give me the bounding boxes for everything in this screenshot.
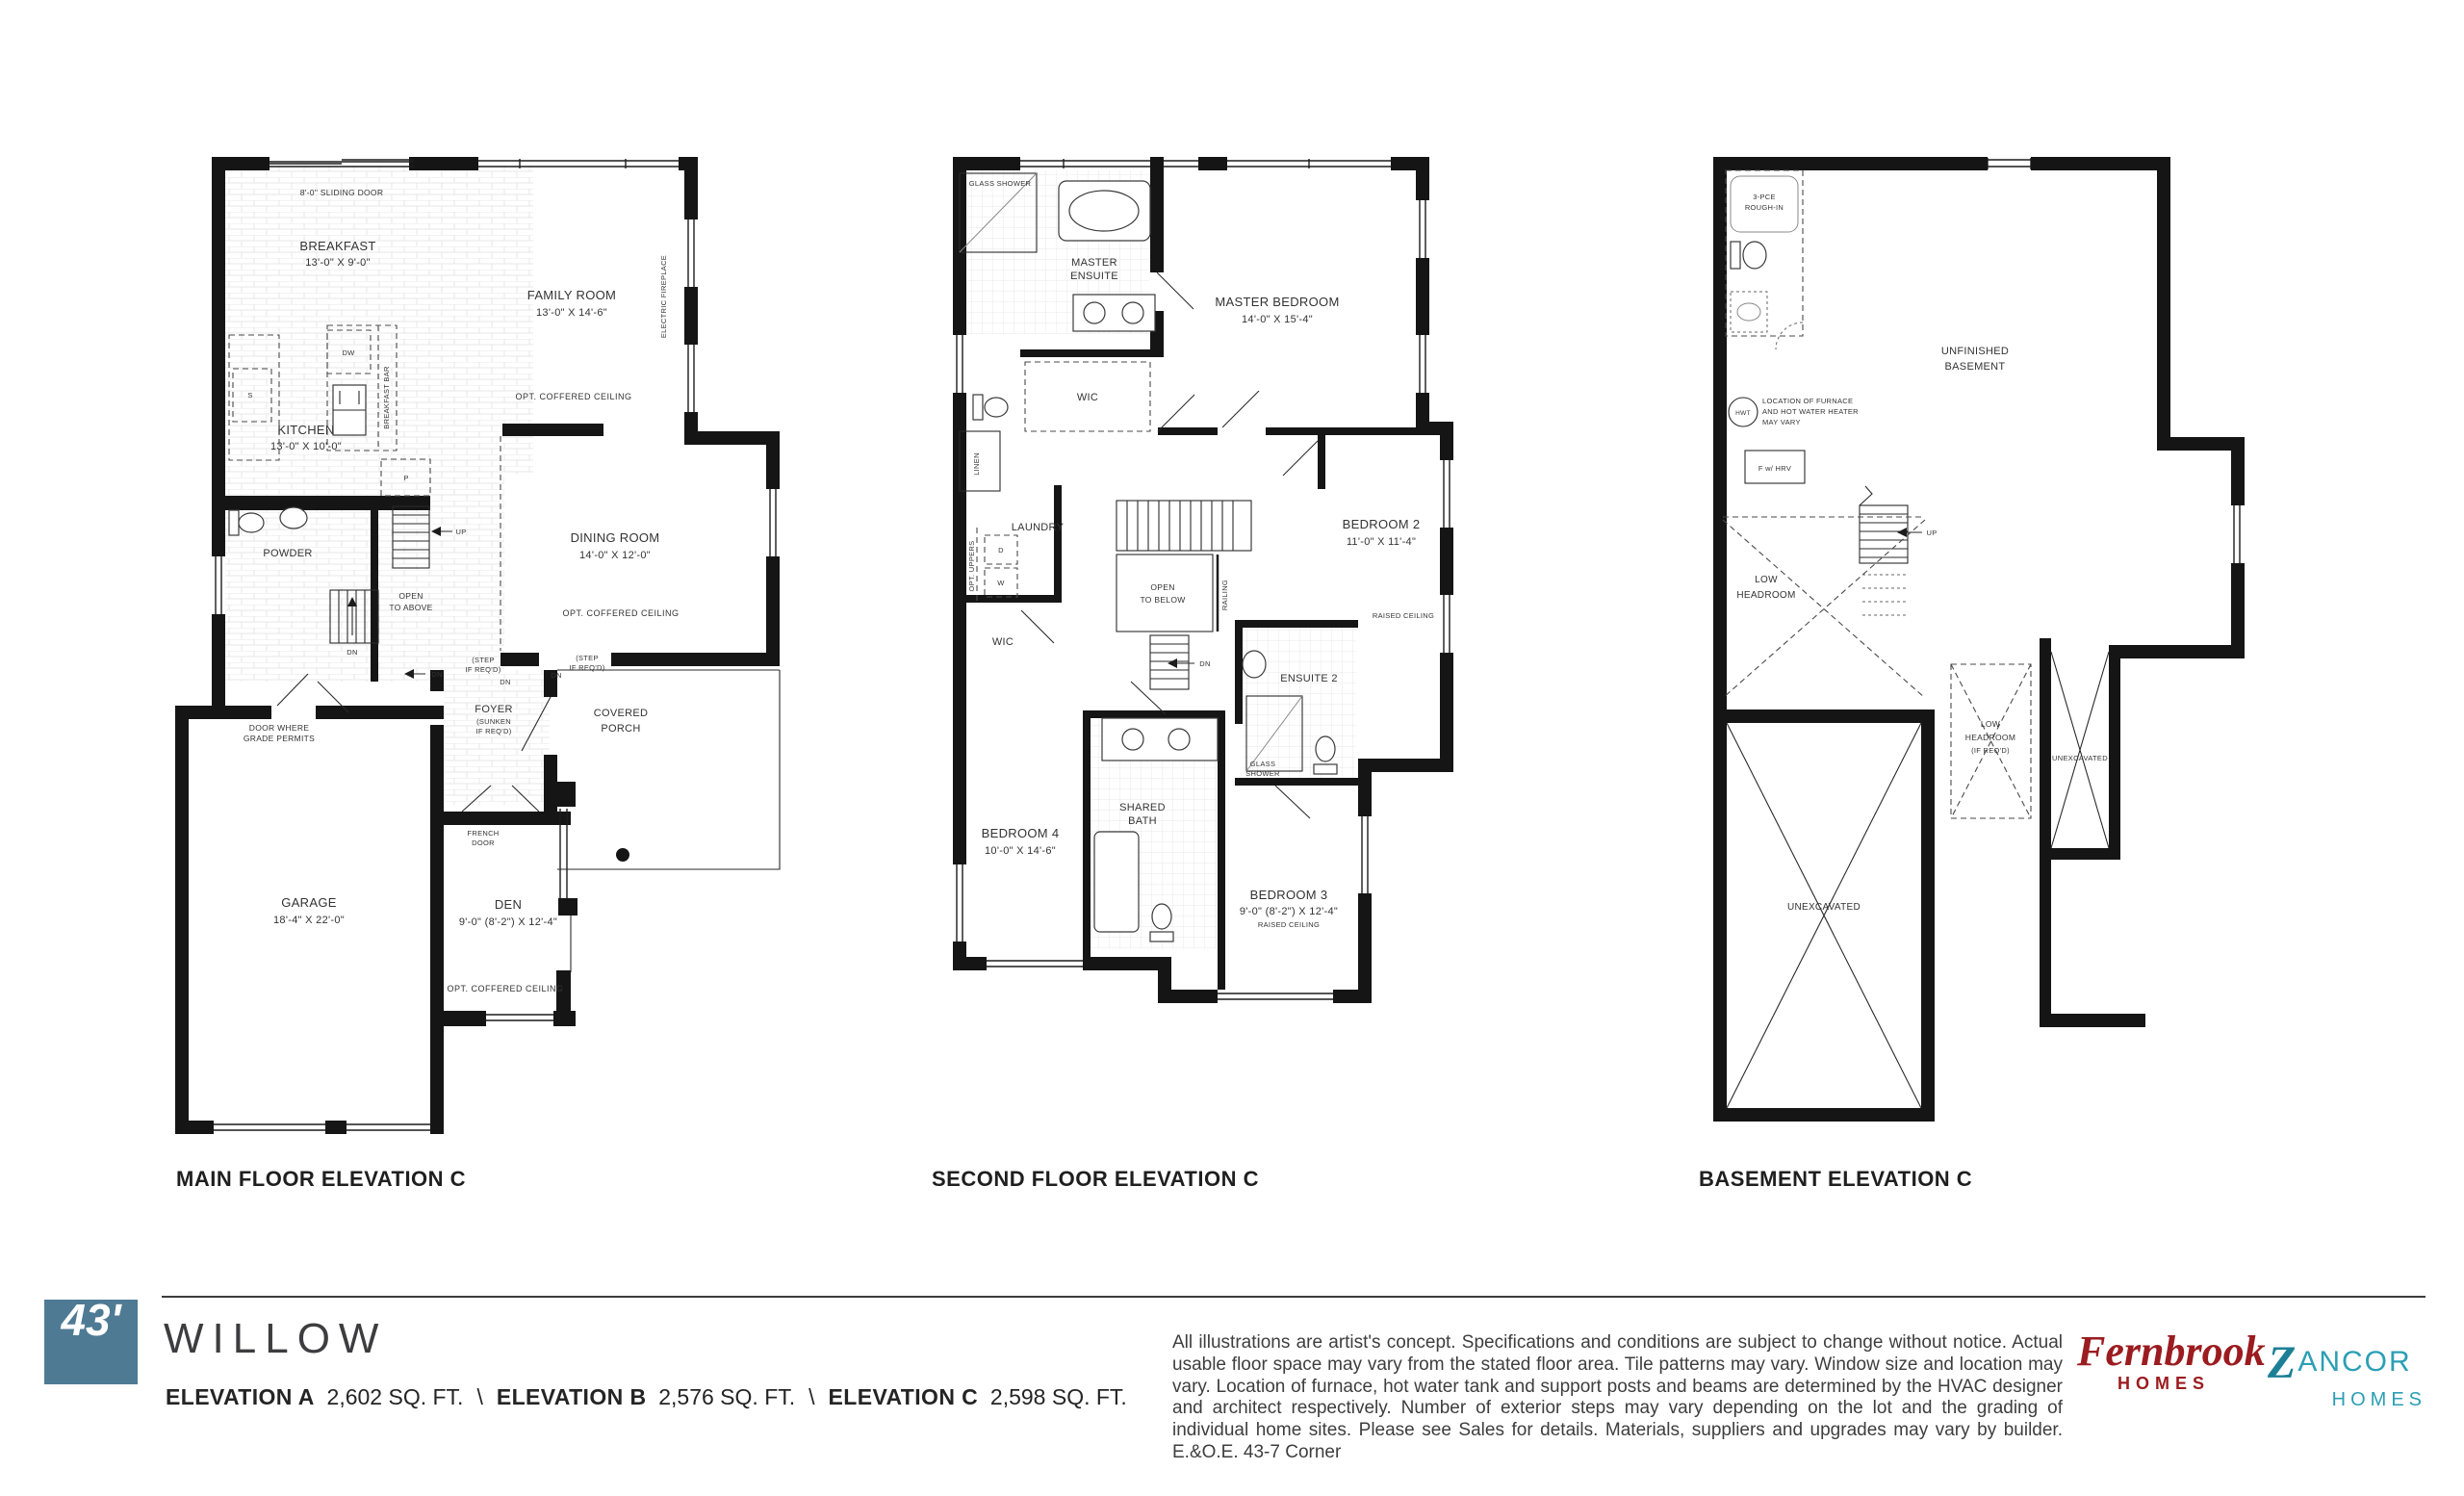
open-to-above-2: TO ABOVE (389, 603, 432, 612)
wic-label: WIC (1077, 392, 1098, 403)
zancor-z-glyph: Z (2268, 1340, 2296, 1386)
unexcavated-strip-label: UNEXCAVATED (2052, 754, 2108, 762)
basement-stairs (1860, 486, 1922, 615)
dn-label-1: DN (346, 648, 357, 657)
fernbrook-wordmark: Fernbrook (2077, 1330, 2250, 1373)
glass-shower2-1: GLASS (1250, 760, 1276, 768)
railing-label: RAILING (1220, 580, 1229, 610)
dw-label: DW (342, 348, 355, 357)
washer-label: W (997, 579, 1005, 587)
step-reqd-a2: IF REQ'D) (465, 665, 500, 674)
foyer-label: FOYER (475, 704, 512, 715)
french-door-1: FRENCH (467, 829, 499, 838)
dining-room-dims: 14'-0" X 12'-0" (579, 550, 651, 561)
shared-bath-2: BATH (1128, 815, 1157, 827)
low-headroom-2: HEADROOM (1736, 590, 1795, 601)
sliding-door-label: 8'-0" SLIDING DOOR (300, 188, 384, 197)
hwt-label: HWT (1735, 410, 1751, 417)
foyer-note-1: (SUNKEN (476, 717, 511, 726)
den-note: OPT. COFFERED CEILING (447, 984, 563, 993)
bedroom2-label: BEDROOM 2 (1343, 517, 1421, 531)
furnace-note-1: LOCATION OF FURNACE (1762, 397, 1853, 405)
open-to-below-2: TO BELOW (1140, 595, 1185, 605)
breakfast-bar-label: BREAKFAST BAR (382, 366, 391, 429)
lot-width-badge: 43' (44, 1300, 138, 1384)
f-hrv-label: F w/ HRV (1758, 464, 1791, 473)
ensuite2-label: ENSUITE 2 (1280, 673, 1338, 684)
breakfast-label: BREAKFAST (299, 239, 375, 253)
elevation-b-sqft: 2,576 SQ. FT. (658, 1384, 795, 1409)
rough-in-1: 3-PCE (1753, 193, 1776, 201)
master-bedroom-dims: 14'-0" X 15'-4" (1242, 314, 1313, 325)
low-headroom2-2: HEADROOM (1965, 733, 2015, 742)
pantry-label: P (403, 474, 408, 482)
covered-porch-2: PORCH (601, 723, 640, 735)
garage-label: GARAGE (281, 895, 336, 910)
lot-width-label: 43' (61, 1300, 120, 1342)
separator: \ (463, 1384, 496, 1409)
opt-uppers-label: OPT. UPPERS (967, 541, 976, 592)
step-reqd-a1: (STEP (472, 656, 495, 664)
dn-label-3: DN (500, 678, 510, 686)
door-grade-1: DOOR WHERE (249, 723, 310, 733)
sink-label: S (247, 391, 252, 400)
wic2-label: WIC (992, 636, 1014, 648)
unfinished-2: BASEMENT (1945, 361, 2006, 373)
unfinished-1: UNFINISHED (1941, 346, 2009, 357)
basement-plan: 3-PCE ROUGH-IN UNFINISHED BASEMENT HWT L… (1699, 149, 2310, 1141)
elevation-c-label: ELEVATION C (829, 1384, 979, 1409)
low-headroom2-1: LOW (1981, 719, 2000, 729)
dryer-label: D (998, 546, 1004, 555)
door-grade-2: GRADE PERMITS (244, 734, 315, 743)
bedroom3-label: BEDROOM 3 (1250, 888, 1328, 902)
open-to-above-1: OPEN (398, 591, 423, 601)
bedroom2-dims: 11'-0" X 11'-4" (1347, 536, 1416, 548)
covered-porch-1: COVERED (594, 708, 649, 719)
footer-divider (162, 1296, 2425, 1298)
dining-room-note: OPT. COFFERED CEILING (562, 608, 679, 618)
linen-label: LINEN (972, 452, 981, 476)
garage-dims: 18'-4" X 22'-0" (273, 915, 345, 926)
den-dims: 9'-0" (8'-2") X 12'-4" (459, 916, 557, 928)
up-label: UP (455, 528, 466, 536)
furnace-note-3: MAY VARY (1762, 418, 1801, 426)
zancor-homes-logo: Z ANCOR HOMES (2268, 1340, 2426, 1409)
bedroom3-note: RAISED CEILING (1258, 920, 1320, 929)
basement-caption: BASEMENT ELEVATION C (1699, 1167, 1972, 1192)
electric-fireplace-label: ELECTRIC FIREPLACE (659, 255, 668, 338)
den-label: DEN (495, 897, 522, 912)
glass-shower2-2: SHOWER (1245, 769, 1280, 778)
rough-in-2: ROUGH-IN (1745, 203, 1784, 212)
zancor-wordmark: ANCOR (2297, 1348, 2411, 1377)
master-ensuite-2: ENSUITE (1070, 271, 1118, 282)
bedroom4-dims: 10'-0" X 14'-6" (985, 845, 1056, 857)
low-headroom2-3: (IF REQ'D) (1971, 746, 2010, 755)
bedroom4-label: BEDROOM 4 (982, 826, 1060, 840)
kitchen-label: KITCHEN (277, 423, 334, 437)
laundry-label: LAUNDRY (1012, 522, 1065, 533)
fernbrook-homes-logo: Fernbrook HOMES (2077, 1330, 2250, 1392)
shared-bath-1: SHARED (1119, 802, 1166, 813)
breakfast-dims: 13'-0" X 9'-0" (305, 257, 371, 269)
kitchen-dims: 13'-0" X 10'-0" (270, 441, 342, 452)
main-floor-caption: MAIN FLOOR ELEVATION C (176, 1167, 466, 1192)
bedroom3-dims: 9'-0" (8'-2") X 12'-4" (1240, 906, 1338, 917)
dining-room-label: DINING ROOM (571, 530, 660, 545)
powder-label: POWDER (263, 548, 312, 559)
main-porch-outline (557, 670, 780, 869)
master-bedroom-label: MASTER BEDROOM (1215, 295, 1339, 309)
up-label: UP (1926, 529, 1937, 537)
second-floor-caption: SECOND FLOOR ELEVATION C (932, 1167, 1259, 1192)
elevation-summary: ELEVATION A 2,602 SQ. FT.\ELEVATION B 2,… (166, 1384, 1127, 1410)
step-reqd-b1: (STEP (576, 654, 599, 662)
open-to-below-1: OPEN (1150, 582, 1174, 592)
legal-disclaimer: All illustrations are artist's concept. … (1172, 1332, 2063, 1464)
low-headroom-1: LOW (1755, 575, 1778, 585)
elevation-b-label: ELEVATION B (497, 1384, 647, 1409)
elevation-a-sqft: 2,602 SQ. FT. (327, 1384, 464, 1409)
second-floor-plan: GLASS SHOWER MASTER ENSUITE MASTER BEDRO… (929, 142, 1458, 1047)
family-room-label: FAMILY ROOM (527, 288, 616, 302)
elevation-c-sqft: 2,598 SQ. FT. (990, 1384, 1127, 1409)
zancor-homes-label: HOMES (2268, 1390, 2426, 1409)
unexcavated-label: UNEXCAVATED (1787, 902, 1861, 913)
separator: \ (795, 1384, 828, 1409)
master-ensuite-1: MASTER (1071, 257, 1117, 269)
furnace-note-2: AND HOT WATER HEATER (1762, 407, 1859, 416)
glass-shower-label: GLASS SHOWER (969, 179, 1032, 188)
main-floor-plan: 8'-0" SLIDING DOOR BREAKFAST 13'-0" X 9'… (173, 142, 799, 1144)
dn-label: DN (1199, 659, 1210, 668)
elevation-a-label: ELEVATION A (166, 1384, 315, 1409)
model-name: WILLOW (164, 1315, 387, 1363)
french-door-2: DOOR (472, 838, 495, 847)
bedroom2-note: RAISED CEILING (1373, 611, 1434, 620)
family-room-dims: 13'-0" X 14'-6" (536, 307, 607, 319)
floorplan-brochure-page: { "plans": { "main": { "caption": "MAIN … (0, 0, 2464, 1496)
fernbrook-homes-label: HOMES (2077, 1375, 2250, 1392)
dn-label-2: DN (431, 670, 442, 679)
family-room-note: OPT. COFFERED CEILING (515, 392, 631, 401)
foyer-note-2: IF REQ'D) (475, 727, 511, 735)
dn-label-4: DN (551, 671, 561, 680)
step-reqd-b2: IF REQ'D) (569, 663, 604, 672)
